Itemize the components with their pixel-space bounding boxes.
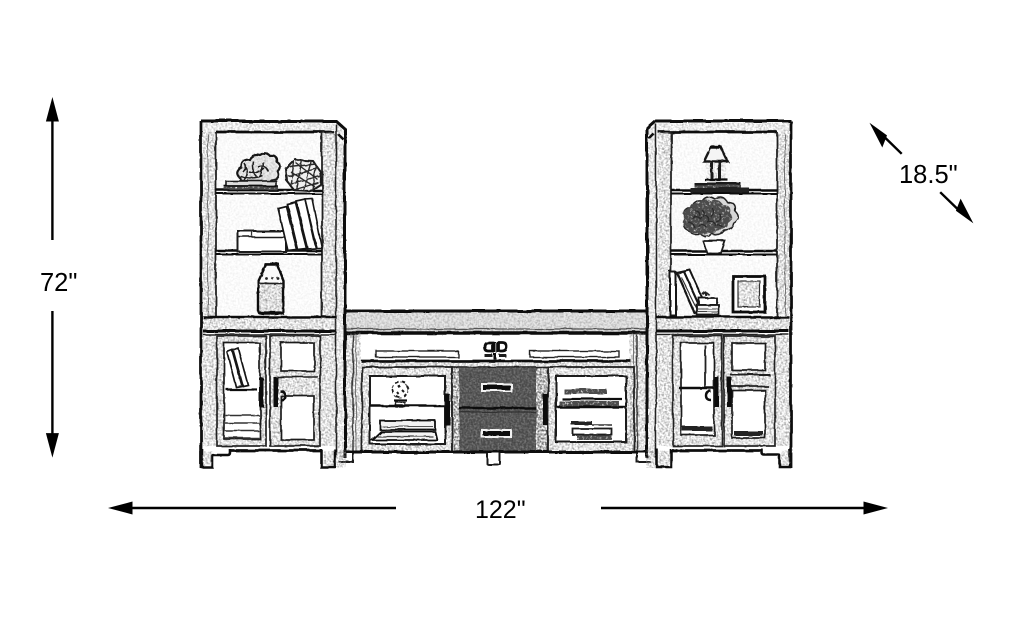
svg-text:72": 72"	[40, 269, 77, 297]
svg-text:122": 122"	[475, 496, 526, 524]
svg-text:18.5": 18.5"	[899, 161, 958, 189]
